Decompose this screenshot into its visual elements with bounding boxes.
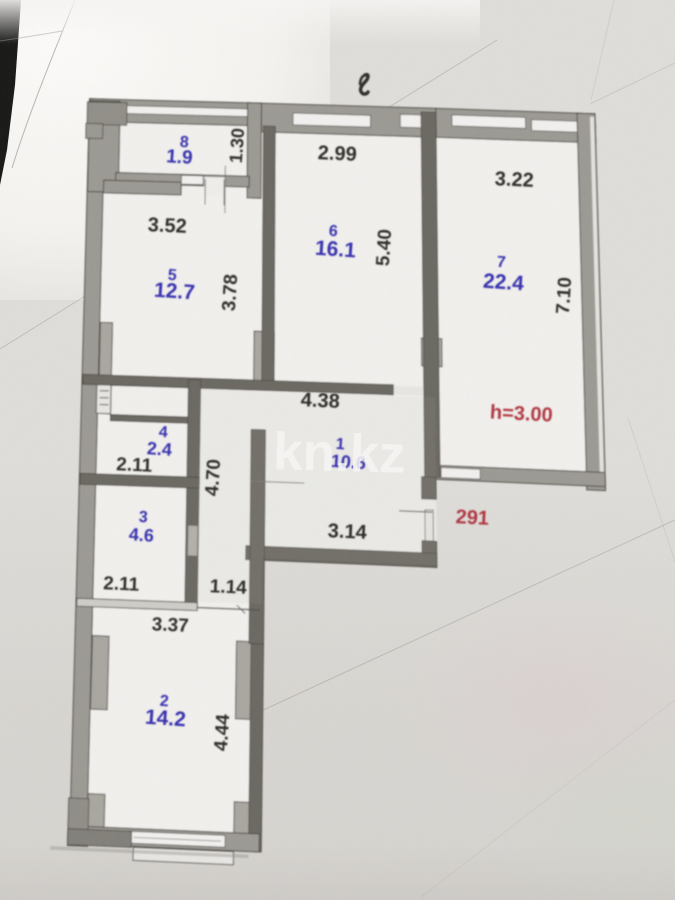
svg-text:kn.kz: kn.kz: [272, 422, 406, 484]
